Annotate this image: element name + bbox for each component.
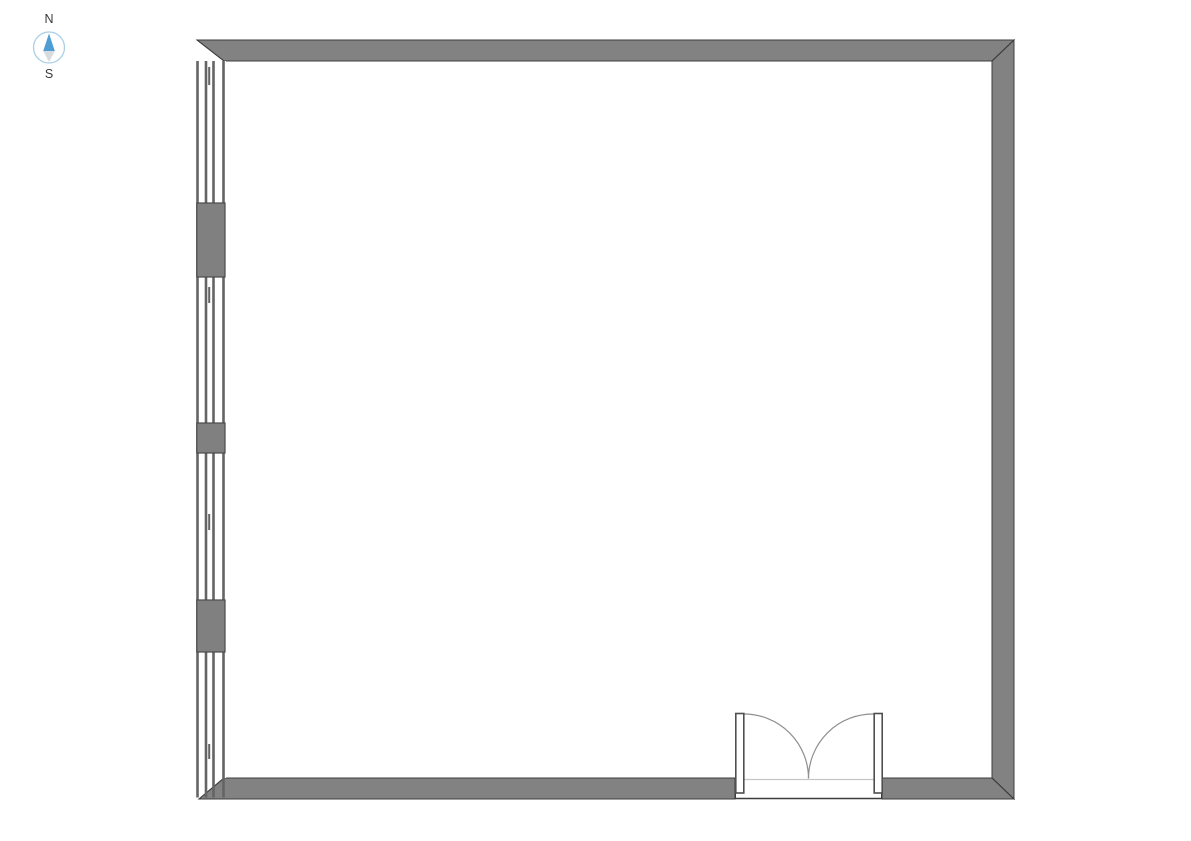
wall-pier-2 bbox=[197, 423, 225, 453]
wall-east bbox=[992, 40, 1014, 799]
compass-south-label: S bbox=[45, 67, 53, 81]
double-door bbox=[735, 714, 882, 800]
door-leaf-right bbox=[874, 714, 882, 794]
door-swing-arc-right bbox=[809, 714, 875, 779]
window-backing bbox=[196, 61, 226, 778]
wall-pier-3 bbox=[197, 600, 225, 652]
door-leaf-left bbox=[736, 714, 744, 794]
wall-south-right bbox=[882, 778, 1014, 799]
door-threshold bbox=[735, 779, 882, 799]
west-window-wall bbox=[196, 61, 226, 798]
door-swing-arc-left bbox=[744, 714, 809, 779]
wall-pier-1 bbox=[197, 203, 225, 277]
wall-north bbox=[197, 40, 1014, 61]
floor-plan-canvas: N S bbox=[0, 0, 1191, 841]
compass: N S bbox=[34, 12, 65, 81]
walls bbox=[197, 40, 1014, 799]
floor-plan-page: N S bbox=[0, 0, 1191, 841]
wall-south-left bbox=[199, 778, 735, 799]
compass-north-label: N bbox=[44, 12, 53, 26]
